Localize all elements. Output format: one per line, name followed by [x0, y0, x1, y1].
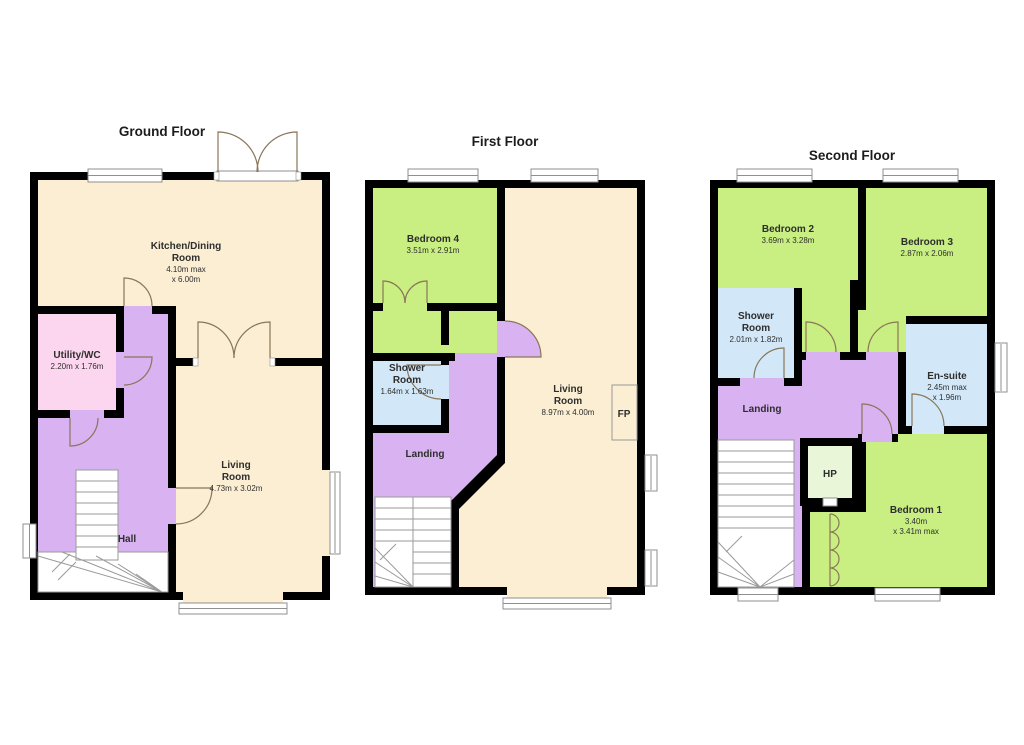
- living-first-dims: 8.97m x 4.00m: [542, 408, 595, 417]
- shower-first-label: Shower: [389, 363, 425, 374]
- first-stairs: [375, 497, 451, 587]
- bedroom2-dims: 3.69m x 3.28m: [762, 236, 815, 245]
- living-first-label-2: Room: [554, 396, 582, 407]
- shower-second-label: Shower: [738, 311, 774, 322]
- living-ground-label: Living: [221, 460, 250, 471]
- bedroom3-label: Bedroom 3: [901, 237, 954, 248]
- patio-door-left-arc: [218, 132, 258, 172]
- door-jamb: [270, 358, 275, 366]
- hall-living-door-gap: [168, 488, 176, 524]
- kitchen-living-french-door-gap: [198, 358, 270, 366]
- hp-door-gap: [823, 498, 837, 506]
- bedroom2-door-gap: [806, 352, 840, 360]
- living-side-bay-opening: [322, 470, 330, 556]
- first-floor-title: First Floor: [472, 134, 539, 149]
- shower-second-door-gap: [740, 378, 784, 386]
- ground-floor-title: Ground Floor: [119, 124, 206, 139]
- utility-label: Utility/WC: [53, 350, 100, 361]
- ensuite-dims-2: x 1.96m: [933, 393, 962, 402]
- door-jamb: [296, 172, 301, 180]
- living-ground-dims: 4.73m x 3.02m: [210, 484, 263, 493]
- utility-dims: 2.20m x 1.76m: [51, 362, 104, 371]
- shower-second-label-2: Room: [742, 323, 770, 334]
- second-stairs: [718, 440, 794, 587]
- bedroom4-french-gap: [383, 303, 427, 311]
- patio-door-right-arc: [257, 132, 297, 172]
- hall-kitchen-door-gap: [124, 306, 152, 314]
- landing-living-door-gap: [497, 321, 505, 357]
- bedroom4-lobby: [373, 311, 497, 353]
- shower-first-dims: 1.64m x 1.63m: [381, 387, 434, 396]
- ensuite-door-gap: [912, 426, 944, 434]
- hall-lower-door-gap: [70, 410, 104, 418]
- kitchen-dims-2: x 6.00m: [172, 275, 201, 284]
- living-first-label: Living: [553, 384, 582, 395]
- bedroom1-label: Bedroom 1: [890, 505, 943, 516]
- shower-second-dims: 2.01m x 1.82m: [730, 335, 783, 344]
- shower-first-label-2: Room: [393, 375, 421, 386]
- lobby-stub-wall: [441, 311, 449, 345]
- ensuite-dims: 2.45m max: [927, 383, 967, 392]
- bedroom4-dims: 3.51m x 2.91m: [407, 246, 460, 255]
- door-jamb: [193, 358, 198, 366]
- fireplace-label: FP: [618, 409, 631, 420]
- bedroom3-door-gap: [866, 352, 898, 360]
- landing-first-label: Landing: [406, 449, 445, 460]
- floorplan-canvas: Ground Floor: [0, 0, 1024, 745]
- utility-door-gap: [116, 352, 124, 388]
- bedroom4-label: Bedroom 4: [407, 234, 460, 245]
- kitchen-label: Kitchen/Dining: [151, 241, 222, 252]
- bedroom3-dims: 2.87m x 2.06m: [901, 249, 954, 258]
- bedroom2-label: Bedroom 2: [762, 224, 815, 235]
- hall-label: Hall: [118, 534, 137, 545]
- ground-floor-plan: Ground Floor: [23, 124, 340, 614]
- bedroom1-dims: 3.40m: [905, 517, 928, 526]
- bedroom1-door-gap: [862, 434, 892, 442]
- living-ground-label-2: Room: [222, 472, 250, 483]
- kitchen-dims: 4.10m max: [166, 265, 206, 274]
- ensuite-label: En-suite: [927, 371, 967, 382]
- first-floor-plan: First Floor FP: [365, 134, 657, 609]
- patio-door-gap: [217, 171, 298, 181]
- bedroom1-dims-2: x 3.41m max: [893, 527, 939, 536]
- landing-second-label: Landing: [743, 404, 782, 415]
- hp-label: HP: [823, 469, 837, 480]
- second-floor-plan: Second Floor: [710, 148, 1007, 601]
- door-jamb: [214, 172, 219, 180]
- lobby-landing-gap: [455, 353, 497, 361]
- shower-first-door-gap: [441, 365, 449, 399]
- kitchen-label-2: Room: [172, 253, 200, 264]
- second-floor-title: Second Floor: [809, 148, 896, 163]
- floorplan-page: Ground Floor: [0, 0, 1024, 745]
